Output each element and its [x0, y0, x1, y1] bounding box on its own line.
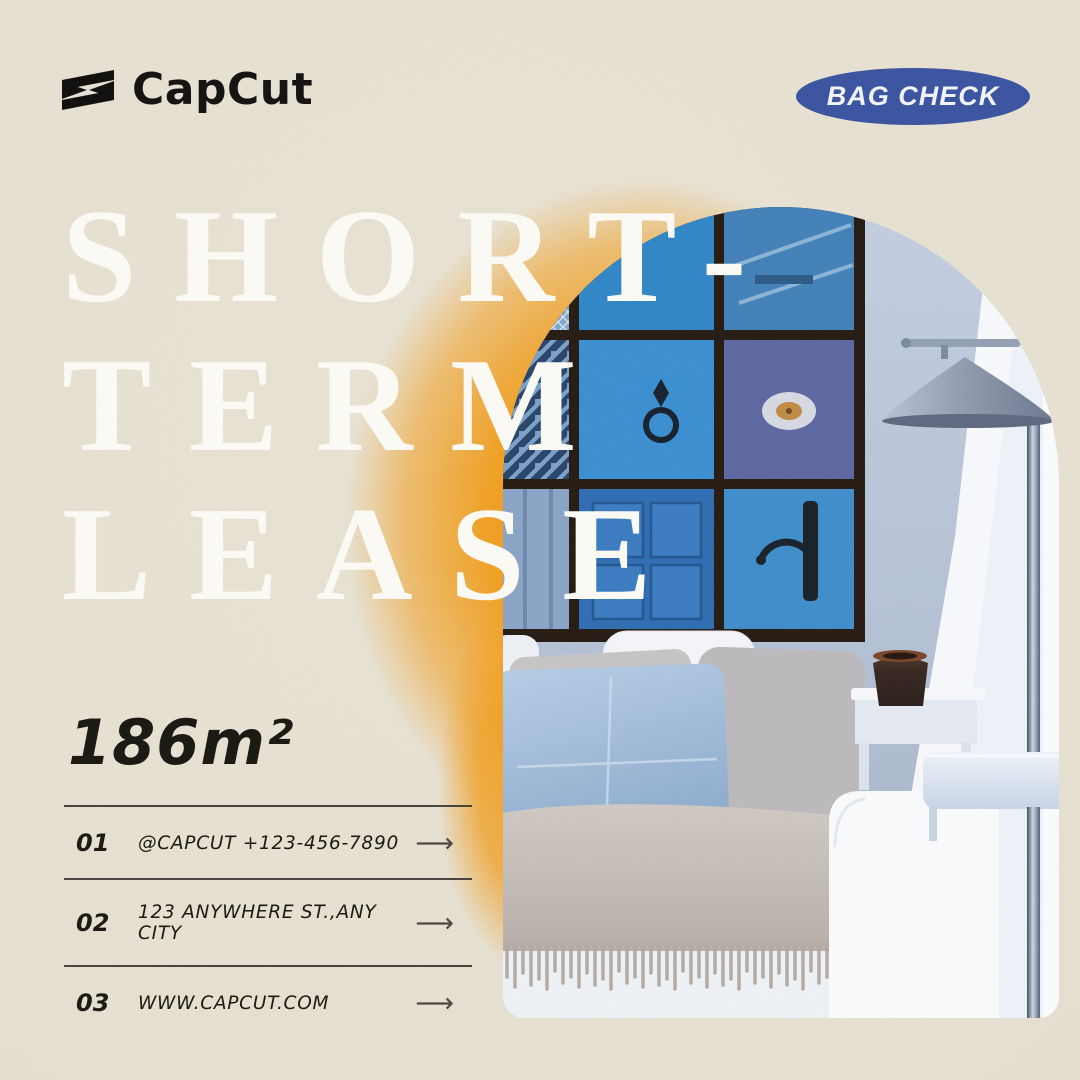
poster-canvas: CapCut BAG CHECK — [0, 0, 1080, 1080]
sofa-armrest — [829, 791, 999, 1018]
info-block: 186m² 01 @CAPCUT +123-456-7890 ⟶ 02 123 … — [64, 700, 472, 1038]
row-number: 03 — [76, 989, 138, 1017]
row-text: 123 ANYWHERE ST.,ANY CITY — [138, 902, 415, 944]
sofa — [503, 646, 866, 1018]
capcut-wordmark: CapCut — [132, 64, 313, 115]
row-number: 01 — [76, 829, 138, 857]
title-line-3: LEASE — [62, 480, 784, 629]
row-number: 02 — [76, 909, 138, 937]
title-line-2: TERM — [62, 331, 784, 480]
throw-blanket — [503, 804, 853, 959]
contact-row-3: 03 WWW.CAPCUT.COM ⟶ — [64, 965, 472, 1038]
area-label: 186m² — [64, 700, 472, 807]
capcut-logo: CapCut — [60, 64, 313, 115]
bag-check-badge-label: BAG CHECK — [827, 81, 1000, 112]
title-line-1: SHORT- — [62, 182, 784, 331]
arrow-right-icon: ⟶ — [415, 910, 468, 937]
row-text: WWW.CAPCUT.COM — [138, 993, 415, 1014]
arrow-right-icon: ⟶ — [415, 990, 468, 1017]
contact-row-1: 01 @CAPCUT +123-456-7890 ⟶ — [64, 807, 472, 878]
row-text: @CAPCUT +123-456-7890 — [138, 833, 415, 854]
bag-check-badge: BAG CHECK — [796, 68, 1030, 125]
arrow-right-icon: ⟶ — [415, 830, 468, 857]
dark-vase — [873, 650, 928, 706]
capcut-logo-icon — [60, 66, 116, 114]
contact-row-2: 02 123 ANYWHERE ST.,ANY CITY ⟶ — [64, 878, 472, 965]
page-title: SHORT- TERM LEASE — [62, 182, 784, 629]
